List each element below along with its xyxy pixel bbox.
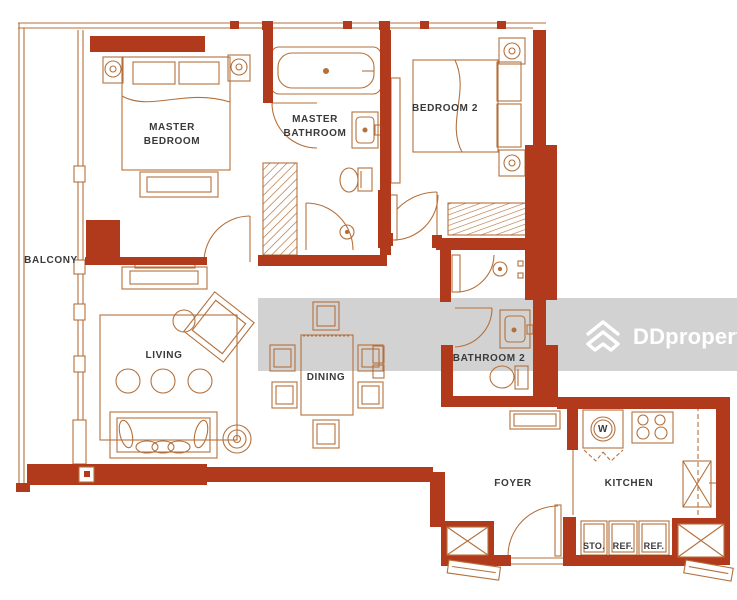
room-label-master-bedroom-line1: MASTER <box>144 121 200 135</box>
floor-plan-image: BALCONY MASTER BEDROOM MASTER BATHROOM B… <box>0 0 737 600</box>
room-label-master-bathroom-line1: MASTER <box>284 113 347 127</box>
room-label-master-bedroom: MASTER BEDROOM <box>144 121 200 149</box>
room-label-bathroom2: BATHROOM 2 <box>453 352 525 366</box>
window-box <box>90 36 205 52</box>
refrigerator2-label: REF. <box>644 539 665 553</box>
foyer-console <box>510 411 560 429</box>
sofa <box>110 412 251 458</box>
room-label-kitchen: KITCHEN <box>605 477 654 491</box>
watermark: DDproperty <box>581 317 737 357</box>
bathtub <box>271 47 381 94</box>
refrigerator1-label: REF. <box>613 539 634 553</box>
room-label-master-bedroom-line2: BEDROOM <box>144 135 200 149</box>
washer-label: W <box>598 423 608 437</box>
room-label-dining: DINING <box>307 371 346 385</box>
room-label-bedroom2: BEDROOM 2 <box>412 102 478 116</box>
armchair <box>173 292 254 362</box>
master-closet <box>263 163 297 255</box>
watermark-brand-text: DDproperty <box>633 324 737 350</box>
master-bedroom-door <box>204 216 250 262</box>
bedroom2-door <box>389 195 438 240</box>
room-label-master-bathroom: MASTER BATHROOM <box>284 113 347 141</box>
kitchen-counter-dashed <box>672 399 698 519</box>
wc-door <box>306 203 354 250</box>
storage-label: STO. <box>583 539 605 553</box>
room-label-balcony: BALCONY <box>24 254 78 268</box>
bedroom2-closet <box>448 203 526 235</box>
room-label-living: LIVING <box>146 349 183 363</box>
master-bathroom-toilet <box>340 168 372 192</box>
stove <box>632 412 673 443</box>
tv-console <box>122 263 207 289</box>
shower-room <box>452 255 523 292</box>
room-label-master-bathroom-line2: BATHROOM <box>284 127 347 141</box>
pouf-chairs <box>116 369 212 393</box>
floor-plan-drawing <box>0 0 737 600</box>
entrance-door <box>508 505 563 564</box>
master-bathroom-sink <box>352 112 381 148</box>
room-label-foyer: FOYER <box>494 477 531 491</box>
ddproperty-logo-icon <box>581 317 625 357</box>
